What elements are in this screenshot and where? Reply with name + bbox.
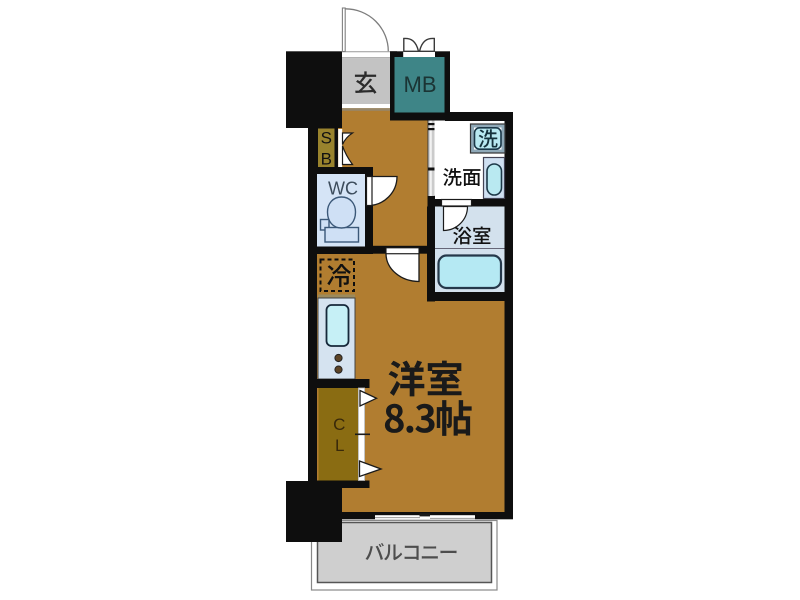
svg-text:L: L bbox=[335, 436, 344, 455]
svg-text:S: S bbox=[321, 129, 332, 148]
svg-text:B: B bbox=[321, 150, 332, 169]
svg-text:MB: MB bbox=[404, 72, 437, 97]
svg-text:C: C bbox=[333, 415, 345, 434]
svg-text:WC: WC bbox=[328, 179, 358, 199]
